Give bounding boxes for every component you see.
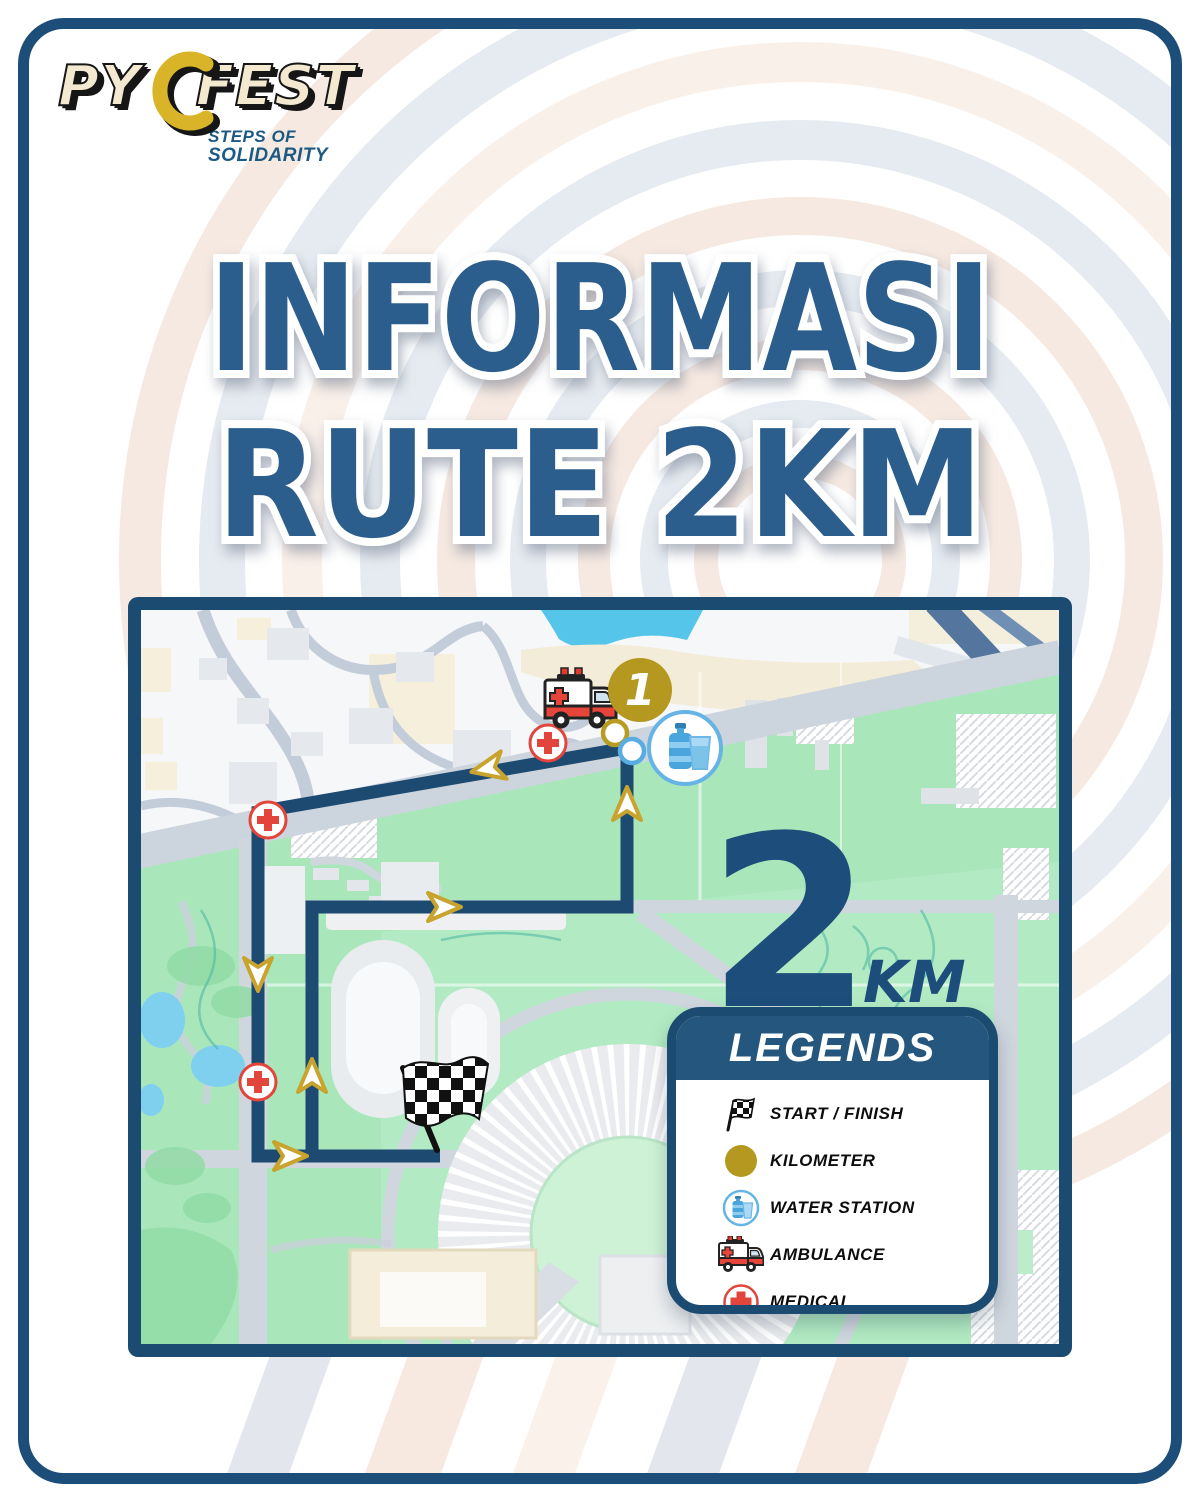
legend-item-start-finish: START / FINISH bbox=[712, 1090, 989, 1137]
legend-label: WATER STATION bbox=[770, 1198, 915, 1218]
ambulance-icon bbox=[712, 1236, 770, 1274]
pyfest-logo-wordmark: PY FEST bbox=[58, 38, 358, 134]
legends-header: LEGENDS bbox=[676, 1016, 989, 1080]
medical-icon bbox=[712, 1283, 770, 1315]
poster: PY FEST STEPS OF SOLIDARITY INFORMASI IN… bbox=[0, 0, 1200, 1502]
crescent-icon bbox=[140, 42, 226, 138]
legend-item-water-station: WATER STATION bbox=[712, 1184, 989, 1231]
kilometer-1-badge: 1 bbox=[608, 658, 672, 722]
title-line-1-fill: INFORMASI bbox=[102, 244, 1098, 394]
legend-item-ambulance: AMBULANCE bbox=[712, 1231, 989, 1278]
water-point-marker bbox=[620, 739, 644, 763]
map-bottom-buildings bbox=[350, 1250, 690, 1338]
kilometer-icon bbox=[712, 1143, 770, 1179]
medical-icon bbox=[530, 725, 566, 761]
legend-label: START / FINISH bbox=[770, 1104, 903, 1124]
legend-label: KILOMETER bbox=[770, 1151, 876, 1171]
legend-item-medical: MEDICAL bbox=[712, 1278, 989, 1314]
legend-item-kilometer: KILOMETER bbox=[712, 1137, 989, 1184]
legends-panel: LEGENDS START / FINISH bbox=[667, 1007, 998, 1314]
water-station-icon bbox=[649, 712, 721, 784]
title-line-1: INFORMASI INFORMASI bbox=[102, 244, 1098, 402]
start-finish-flag-icon bbox=[712, 1094, 770, 1134]
legend-label: MEDICAL bbox=[770, 1292, 852, 1312]
distance-unit: KM bbox=[863, 948, 966, 1016]
logo-tagline-line2: SOLIDARITY bbox=[208, 146, 358, 166]
water-station-icon bbox=[712, 1189, 770, 1227]
logo-word-py: PY bbox=[58, 54, 142, 119]
kilometer-1-label: 1 bbox=[625, 665, 656, 716]
page-title: INFORMASI INFORMASI RUTE 2KM RUTE 2KM bbox=[0, 244, 1200, 568]
title-line-2-fill: RUTE 2KM bbox=[60, 410, 1140, 560]
logo-tagline-line1: STEPS OF bbox=[208, 128, 358, 146]
legends-title: LEGENDS bbox=[729, 1026, 936, 1071]
legend-label: AMBULANCE bbox=[770, 1245, 885, 1265]
logo-tagline: STEPS OF SOLIDARITY bbox=[208, 128, 358, 166]
pyfest-logo: PY FEST STEPS OF SOLIDARITY bbox=[58, 38, 358, 166]
title-line-2: RUTE 2KM RUTE 2KM bbox=[60, 410, 1140, 568]
legends-rows: START / FINISH KILOMETER bbox=[676, 1080, 989, 1314]
medical-icon bbox=[250, 802, 286, 838]
medical-icon bbox=[240, 1064, 276, 1100]
